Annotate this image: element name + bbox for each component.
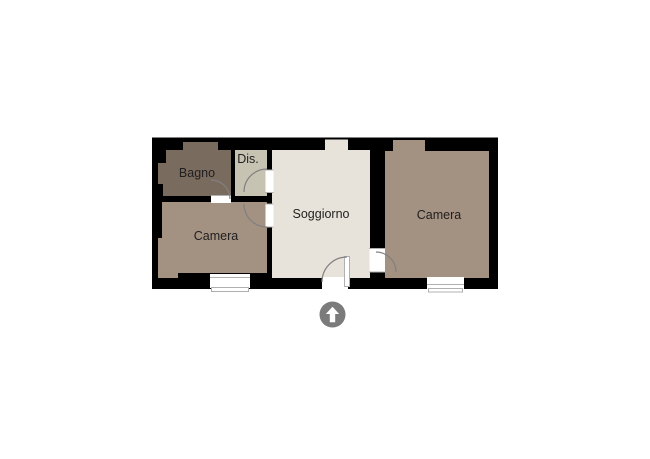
camera-left-door-opening bbox=[266, 204, 274, 228]
dis-label: Dis. bbox=[237, 152, 259, 166]
dis-door-opening bbox=[266, 170, 274, 193]
window-left-outer-sill bbox=[212, 288, 249, 292]
window-right bbox=[427, 277, 464, 289]
bagno-label: Bagno bbox=[179, 166, 215, 180]
camera-right-label: Camera bbox=[417, 208, 462, 222]
soggiorno-label: Soggiorno bbox=[293, 207, 350, 221]
window-right-outer-sill bbox=[429, 289, 463, 293]
north-arrow-icon bbox=[320, 302, 346, 328]
floor-plan: Bagno Dis. Soggiorno Camera Camera bbox=[0, 0, 650, 459]
camera-left-label: Camera bbox=[194, 229, 239, 243]
entrance-door-leaf bbox=[345, 257, 350, 287]
window-left bbox=[210, 274, 250, 288]
bagno-door-opening bbox=[211, 195, 231, 203]
